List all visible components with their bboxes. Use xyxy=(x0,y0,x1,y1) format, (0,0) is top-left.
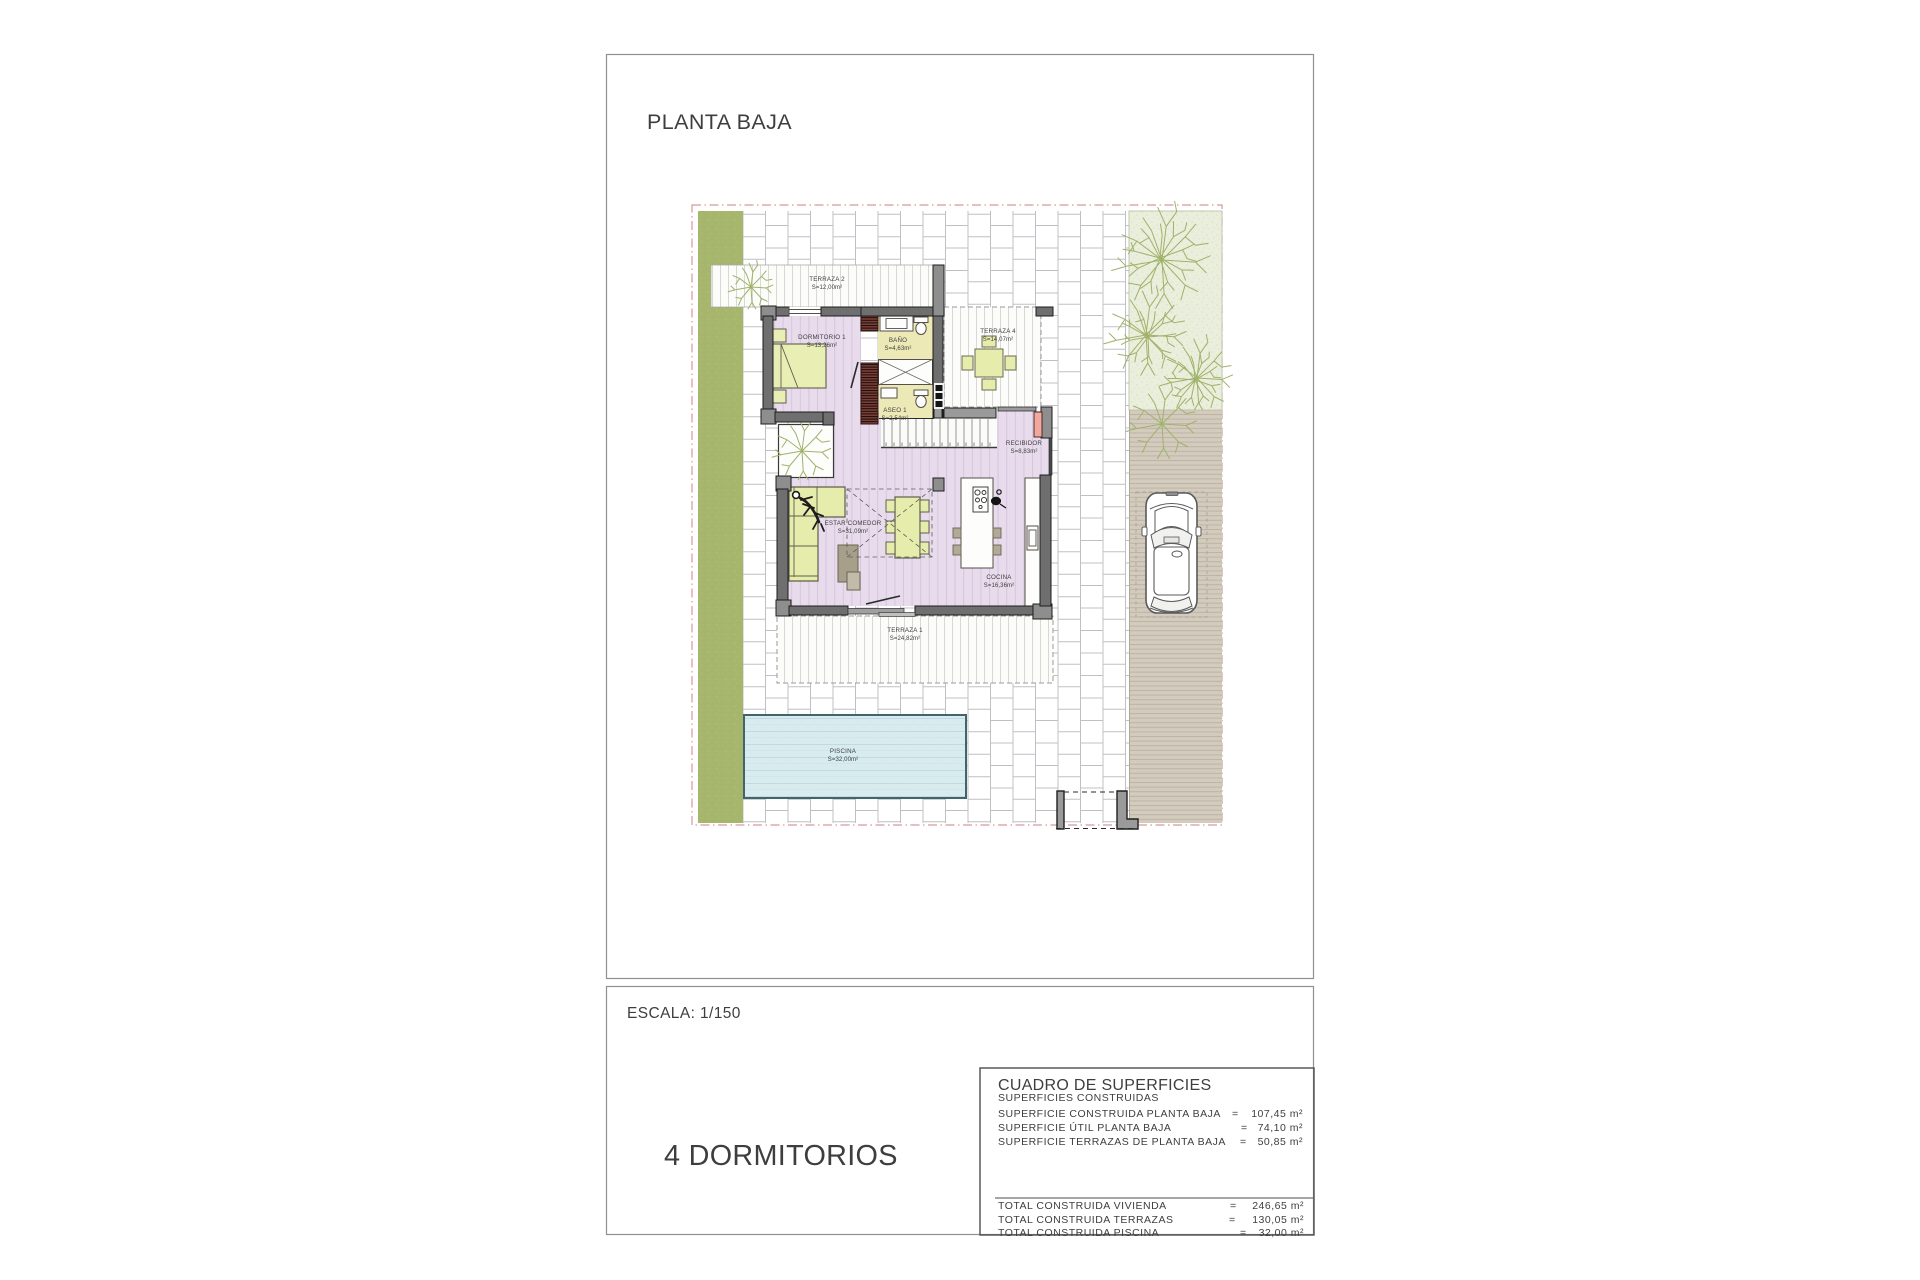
svg-text:DORMITORIO 1: DORMITORIO 1 xyxy=(798,334,846,341)
svg-text:SUPERFICIE ÚTIL PLANTA BAJA: SUPERFICIE ÚTIL PLANTA BAJA xyxy=(998,1121,1171,1134)
svg-text:S=32,00m²: S=32,00m² xyxy=(828,757,858,763)
svg-text:TERRAZA 2: TERRAZA 2 xyxy=(809,276,845,283)
svg-text:COCINA: COCINA xyxy=(986,574,1012,581)
svg-text:S=8,83m²: S=8,83m² xyxy=(1011,449,1038,455)
svg-text:BAÑO: BAÑO xyxy=(889,337,907,344)
svg-text:TOTAL CONSTRUIDA TERRAZAS: TOTAL CONSTRUIDA TERRAZAS xyxy=(998,1214,1173,1226)
svg-text:=: = xyxy=(1230,1200,1237,1212)
svg-text:=: = xyxy=(1232,1108,1239,1120)
svg-text:S=31,09m²: S=31,09m² xyxy=(838,529,868,535)
svg-text:32,00 m²: 32,00 m² xyxy=(1259,1227,1304,1239)
svg-text:50,85 m²: 50,85 m² xyxy=(1258,1136,1303,1148)
svg-text:TERRAZA 4: TERRAZA 4 xyxy=(980,328,1016,335)
svg-text:74,10 m²: 74,10 m² xyxy=(1258,1122,1303,1134)
svg-text:S=13,26m²: S=13,26m² xyxy=(807,343,837,349)
svg-text:=: = xyxy=(1240,1136,1247,1148)
svg-text:ESTAR COMEDOR: ESTAR COMEDOR xyxy=(825,520,882,527)
svg-text:PLANTA BAJA: PLANTA BAJA xyxy=(647,110,792,134)
svg-text:=: = xyxy=(1241,1122,1248,1134)
svg-text:246,65 m²: 246,65 m² xyxy=(1252,1200,1304,1212)
svg-text:4 DORMITORIOS: 4 DORMITORIOS xyxy=(664,1140,898,1172)
svg-text:SUPERFICIES CONSTRUIDAS: SUPERFICIES CONSTRUIDAS xyxy=(998,1092,1159,1104)
svg-text:SUPERFICIE TERRAZAS DE PLANTA: SUPERFICIE TERRAZAS DE PLANTA BAJA xyxy=(998,1136,1226,1148)
svg-text:ASEO 1: ASEO 1 xyxy=(883,407,907,414)
svg-text:=: = xyxy=(1240,1227,1247,1239)
svg-text:TOTAL CONSTRUIDA PISCINA: TOTAL CONSTRUIDA PISCINA xyxy=(998,1227,1159,1239)
svg-text:TOTAL CONSTRUIDA VIVIENDA: TOTAL CONSTRUIDA VIVIENDA xyxy=(998,1200,1167,1212)
svg-text:S=14,07m²: S=14,07m² xyxy=(983,337,1013,343)
svg-text:S=16,36m²: S=16,36m² xyxy=(984,583,1014,589)
svg-text:RECIBIDOR: RECIBIDOR xyxy=(1006,440,1043,447)
svg-text:=: = xyxy=(1229,1214,1236,1226)
svg-text:TERRAZA 1: TERRAZA 1 xyxy=(887,627,923,634)
svg-text:ESCALA: 1/150: ESCALA: 1/150 xyxy=(627,1005,741,1022)
svg-text:SUPERFICIE CONSTRUIDA PLANTA B: SUPERFICIE CONSTRUIDA PLANTA BAJA xyxy=(998,1108,1221,1120)
svg-text:130,05 m²: 130,05 m² xyxy=(1252,1214,1304,1226)
svg-text:S=2,54m²: S=2,54m² xyxy=(882,416,909,422)
svg-text:107,45 m²: 107,45 m² xyxy=(1251,1108,1303,1120)
svg-text:S=4,63m²: S=4,63m² xyxy=(885,346,912,352)
svg-text:S=24,82m²: S=24,82m² xyxy=(890,636,920,642)
svg-text:PISCINA: PISCINA xyxy=(830,748,857,755)
svg-text:S=12,00m²: S=12,00m² xyxy=(812,285,842,291)
